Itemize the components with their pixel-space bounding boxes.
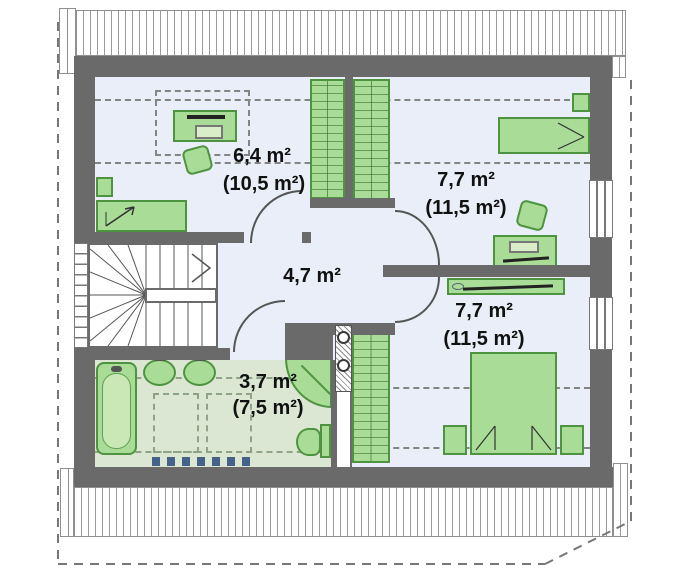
room-label-area: 6,4 m² (207, 143, 317, 169)
keyboard-icon (509, 241, 539, 253)
pen-icon (503, 256, 549, 262)
door-jamb (302, 232, 311, 243)
bed-cover-lines (500, 119, 588, 152)
keyboard-icon (195, 125, 223, 139)
room-label-gross: (10,5 m²) (202, 171, 326, 197)
wall-bottom (74, 467, 613, 487)
wall-hall-north (310, 198, 395, 208)
bed (498, 117, 590, 154)
room-label-gross: (7,5 m²) (211, 395, 325, 421)
tray-icon (452, 283, 464, 290)
stair-treads (90, 245, 216, 346)
bed (96, 200, 187, 232)
pencil-icon (463, 284, 553, 290)
room-label-area: 4,7 m² (257, 263, 367, 289)
desk (173, 110, 237, 142)
room-label-area: 7,7 m² (434, 298, 534, 324)
nightstand (443, 425, 467, 455)
window (589, 180, 613, 238)
floor-plan: 6,4 m² (10,5 m²) 7,7 m² (11,5 m²) 4,7 m²… (0, 0, 700, 575)
wall-left-lower (74, 360, 95, 467)
stair-railing (74, 243, 88, 348)
shelf-desk (447, 278, 565, 295)
faucet-icon (111, 366, 122, 372)
nightstand (560, 425, 584, 455)
toilet (296, 428, 321, 456)
stair-direction-arrow (192, 254, 210, 282)
chimney-shaft (335, 325, 352, 392)
window (589, 297, 613, 350)
wall-left-upper (74, 77, 95, 243)
wall-niche (335, 392, 352, 467)
room-label-area: 3,7 m² (213, 369, 323, 395)
wall-top (74, 56, 612, 77)
monitor-icon (187, 115, 225, 119)
room-label-gross: (11,5 m²) (410, 195, 522, 221)
bathtub-basin (102, 373, 131, 449)
flue-circle (337, 359, 350, 372)
toilet-cistern (320, 424, 331, 458)
roof-hatch-top (76, 10, 626, 56)
roof-hatch-bottom (74, 487, 613, 537)
bed-fold-lines (472, 354, 555, 453)
room-label-gross: (11,5 m²) (428, 326, 540, 352)
double-bed (470, 352, 557, 455)
washbasin (143, 359, 176, 386)
dormer-outline (153, 393, 199, 453)
bed-cover-lines (98, 202, 185, 230)
wall-closet-divider (345, 77, 353, 208)
wall-bath-corner (285, 335, 333, 360)
wall-right (590, 77, 612, 467)
roof-hatch-top-right (612, 56, 626, 78)
washbasin (183, 359, 216, 386)
room-label-area: 7,7 m² (416, 167, 516, 193)
wardrobe (352, 333, 390, 463)
roof-verge-bottom-left (60, 468, 74, 537)
roof-hatch-bottom-right (613, 463, 628, 537)
wall-bedrooms-divider (383, 265, 590, 277)
wall-bath-north (74, 348, 230, 360)
stairs (88, 243, 218, 348)
radiator (152, 457, 250, 466)
wardrobe (353, 79, 390, 200)
desk (493, 235, 557, 267)
nightstand (572, 93, 590, 112)
flue-circle (337, 331, 350, 344)
bathtub (96, 362, 137, 455)
wall-bedroom1-south (74, 232, 244, 243)
nightstand (96, 177, 113, 197)
